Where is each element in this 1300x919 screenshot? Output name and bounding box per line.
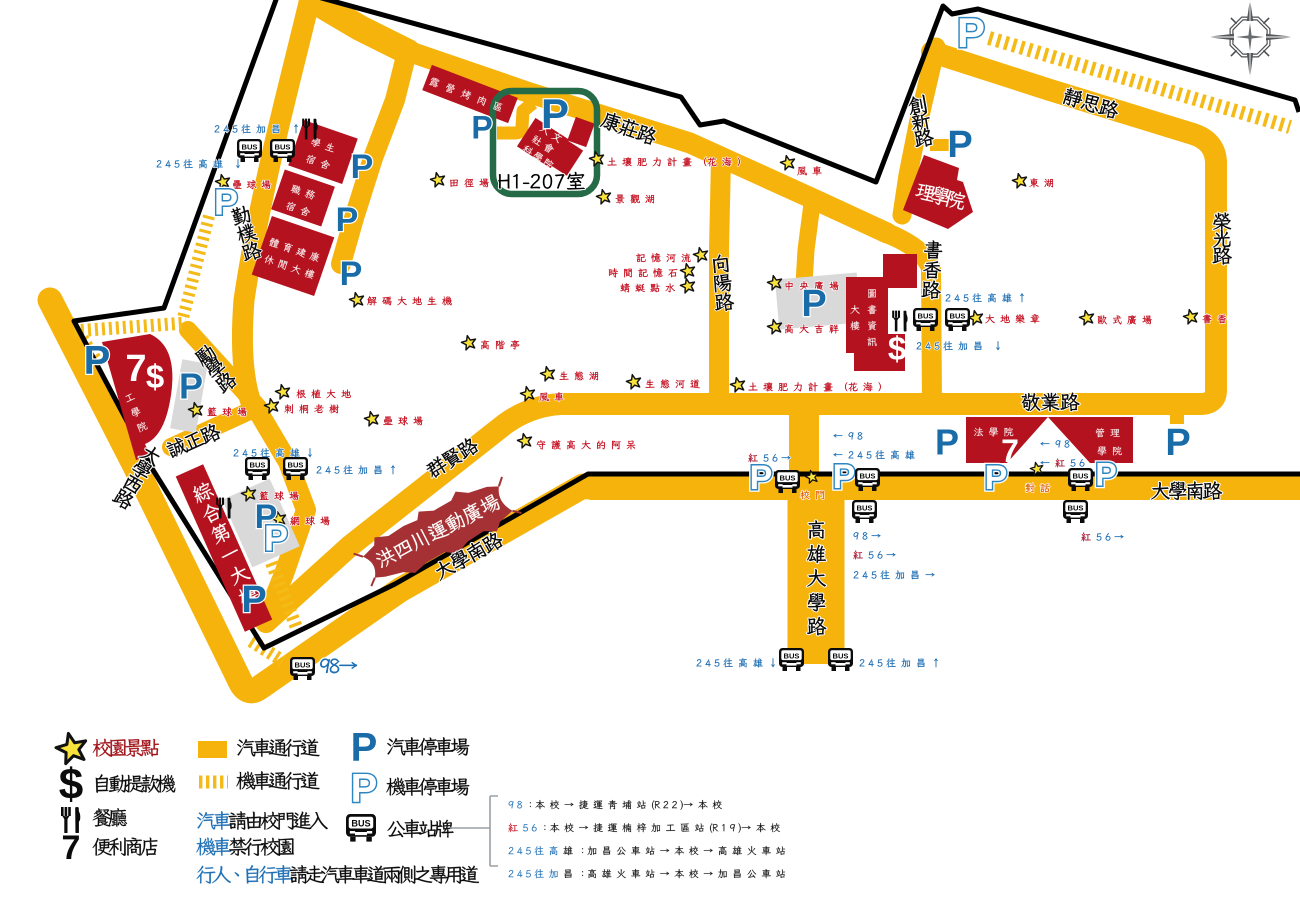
svg-text:P: P [179, 365, 203, 406]
svg-text:$: $ [888, 330, 906, 367]
svg-text:P: P [214, 181, 238, 222]
svg-text:P: P [541, 90, 569, 137]
svg-text:7: 7 [62, 829, 81, 867]
svg-text:P: P [84, 338, 111, 382]
svg-text:P: P [264, 517, 288, 558]
svg-text:P: P [351, 725, 378, 769]
svg-text:P: P [241, 579, 266, 621]
svg-text:P: P [351, 148, 374, 186]
svg-text:P: P [1095, 456, 1116, 492]
svg-text:P: P [935, 421, 959, 462]
svg-text:$: $ [59, 760, 83, 809]
svg-text:P: P [947, 124, 972, 166]
svg-text:P: P [985, 459, 1008, 497]
svg-text:P: P [1165, 422, 1190, 464]
svg-text:P: P [750, 459, 773, 497]
svg-text:7: 7 [125, 348, 146, 390]
svg-text:P: P [471, 109, 492, 145]
svg-text:P: P [336, 201, 359, 239]
svg-text:P: P [957, 9, 985, 56]
svg-text:P: P [801, 283, 826, 325]
svg-text:P: P [833, 458, 856, 496]
svg-text:P: P [340, 255, 363, 293]
svg-text:P: P [351, 766, 378, 810]
svg-text:$: $ [146, 358, 164, 395]
